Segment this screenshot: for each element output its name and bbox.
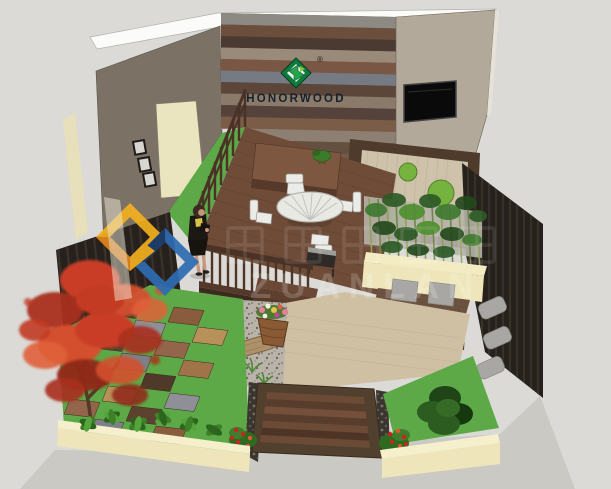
picture-frame (143, 172, 156, 187)
walkway (245, 382, 390, 462)
tv-screen (404, 81, 456, 122)
round-table (277, 192, 343, 222)
picture-frame (138, 157, 151, 172)
chair (286, 174, 305, 195)
registered-mark: ® (317, 55, 323, 64)
walkway-planks (260, 392, 370, 448)
brand-name-text: HONORWOOD (246, 93, 345, 105)
garden-3d-render: ® HONORWOOD (0, 0, 611, 489)
picture-frame (133, 140, 146, 155)
scene-canvas: ® HONORWOOD (0, 0, 611, 489)
watermark-pinyin-text: ZUANLAN (250, 267, 482, 306)
